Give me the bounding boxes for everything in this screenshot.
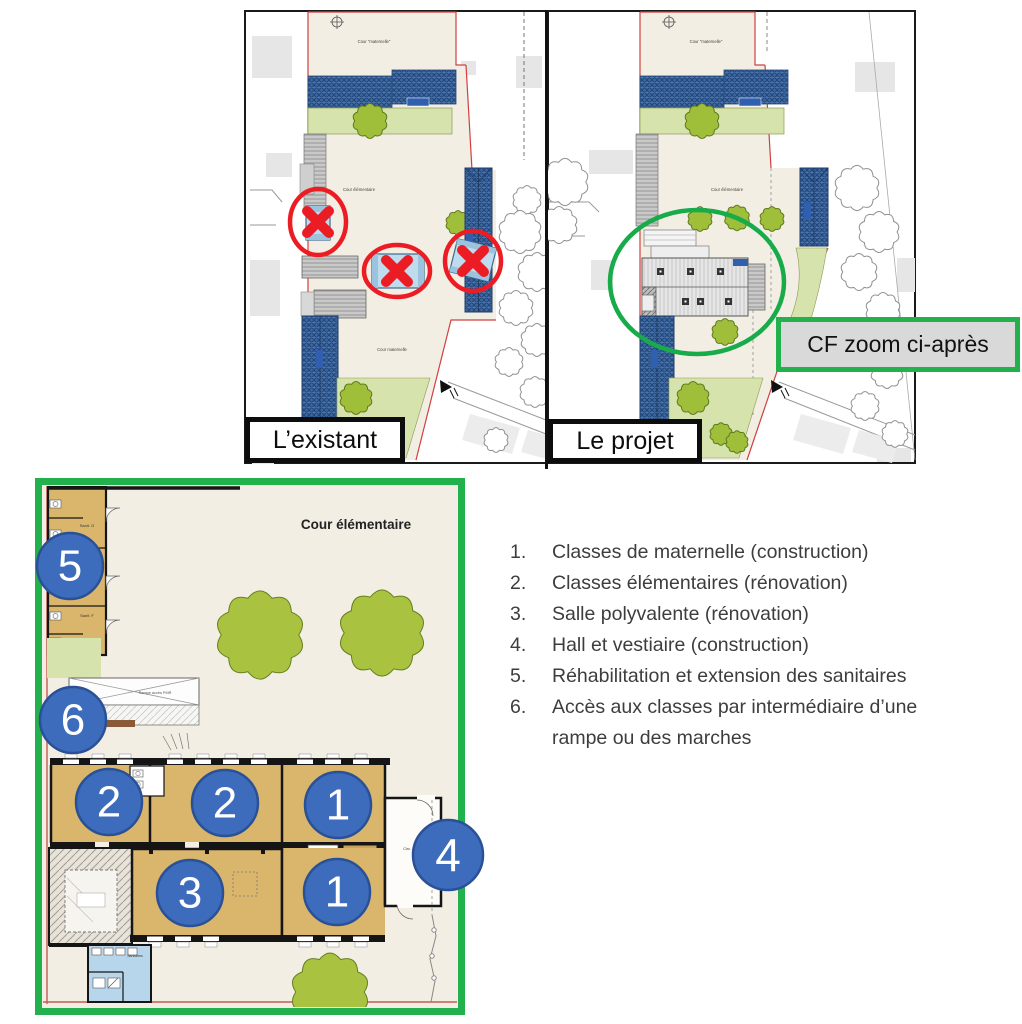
svg-text:1: 1 bbox=[325, 868, 349, 917]
zoom-note-box: CF zoom ci-après bbox=[776, 317, 1020, 372]
floor-plan: Sanit. G Sanit. F Rampe accès PMR bbox=[35, 478, 490, 1024]
legend-number: 5. bbox=[510, 661, 552, 692]
document-page: Cour "maternelle" Cour élémentaire bbox=[0, 0, 1022, 1024]
plans-divider bbox=[545, 10, 548, 469]
zoom-note-text: CF zoom ci-après bbox=[807, 331, 988, 358]
legend-item-5: 5. Réhabilitation et extension des sanit… bbox=[510, 661, 960, 692]
legend-item-1: 1. Classes de maternelle (construction) bbox=[510, 537, 960, 568]
svg-text:5: 5 bbox=[58, 542, 82, 591]
tree bbox=[685, 104, 719, 139]
legend-item-4: 4. Hall et vestiaire (construction) bbox=[510, 630, 960, 661]
svg-text:6: 6 bbox=[61, 696, 85, 745]
marker-2b: 2 bbox=[192, 770, 258, 836]
courtyard-middle-label: Cour élémentaire bbox=[343, 187, 376, 192]
sanit-f-label: Sanit. F bbox=[80, 613, 94, 618]
svg-text:2: 2 bbox=[213, 779, 237, 828]
marker-6: 6 bbox=[40, 687, 106, 753]
legend-number: 1. bbox=[510, 537, 552, 568]
existing-plan-label: L’existant bbox=[245, 417, 405, 463]
courtyard-middle-label: Cour élémentaire bbox=[711, 187, 744, 192]
marker-1a: 1 bbox=[305, 772, 371, 838]
school-roof-south bbox=[302, 316, 338, 426]
marker-2a: 2 bbox=[76, 769, 142, 835]
legend-text: Classes de maternelle (construction) bbox=[552, 537, 952, 568]
school-roofs-north bbox=[640, 70, 788, 108]
legend-number: 4. bbox=[510, 630, 552, 661]
legend-item-3: 3. Salle polyvalente (rénovation) bbox=[510, 599, 960, 630]
sanit-g-label: Sanit. G bbox=[80, 523, 94, 528]
covered-walkway bbox=[636, 134, 658, 226]
marker-3: 3 bbox=[157, 860, 223, 926]
courtyard-top-label: Cour "maternelle" bbox=[690, 39, 723, 44]
tree bbox=[712, 319, 738, 346]
svg-text:2: 2 bbox=[97, 778, 121, 827]
legend-text: Hall et vestiaire (construction) bbox=[552, 630, 952, 661]
legend-list: 1. Classes de maternelle (construction) … bbox=[510, 537, 960, 754]
legend-text: Classes élémentaires (rénovation) bbox=[552, 568, 952, 599]
courtyard-top-label: Cour "maternelle" bbox=[358, 39, 391, 44]
tree bbox=[353, 104, 387, 139]
school-roofs-north bbox=[308, 70, 456, 108]
east-building-roof bbox=[800, 168, 828, 246]
lawn-patch bbox=[47, 638, 101, 678]
legend-text: Accès aux classes par intermédiaire d’un… bbox=[552, 692, 952, 754]
existing-demolition-area bbox=[49, 848, 132, 945]
marker-5: 5 bbox=[37, 533, 103, 599]
marker-4: 4 bbox=[413, 820, 483, 890]
existing-plan-label-text: L’existant bbox=[273, 426, 377, 455]
svg-text:1: 1 bbox=[326, 781, 350, 830]
courtyard-label: Cour élémentaire bbox=[301, 517, 412, 532]
site-plan-project: Cour "maternelle" Cour élémentaire bbox=[547, 10, 916, 464]
legend-number: 2. bbox=[510, 568, 552, 599]
marker-1b: 1 bbox=[304, 859, 370, 925]
legend-item-2: 2. Classes élémentaires (rénovation) bbox=[510, 568, 960, 599]
tree bbox=[340, 382, 372, 415]
sanitaires-label: Sanitaires bbox=[127, 954, 143, 958]
legend-number: 3. bbox=[510, 599, 552, 630]
svg-text:4: 4 bbox=[435, 829, 461, 881]
site-plan-existing: Cour "maternelle" Cour élémentaire bbox=[244, 10, 547, 464]
legend-item-6: 6. Accès aux classes par intermédiaire d… bbox=[510, 692, 960, 754]
sanitaires-room: Sanitaires bbox=[88, 945, 151, 1002]
ramp-label: Rampe accès PMR bbox=[139, 691, 172, 695]
courtyard-bottom-label: Cour maternelle bbox=[377, 347, 407, 352]
svg-text:3: 3 bbox=[178, 869, 202, 918]
project-plan-label-text: Le projet bbox=[576, 427, 673, 456]
legend-number: 6. bbox=[510, 692, 552, 754]
project-plan-label: Le projet bbox=[548, 419, 702, 463]
legend-text: Réhabilitation et extension des sanitair… bbox=[552, 661, 952, 692]
legend-text: Salle polyvalente (rénovation) bbox=[552, 599, 952, 630]
